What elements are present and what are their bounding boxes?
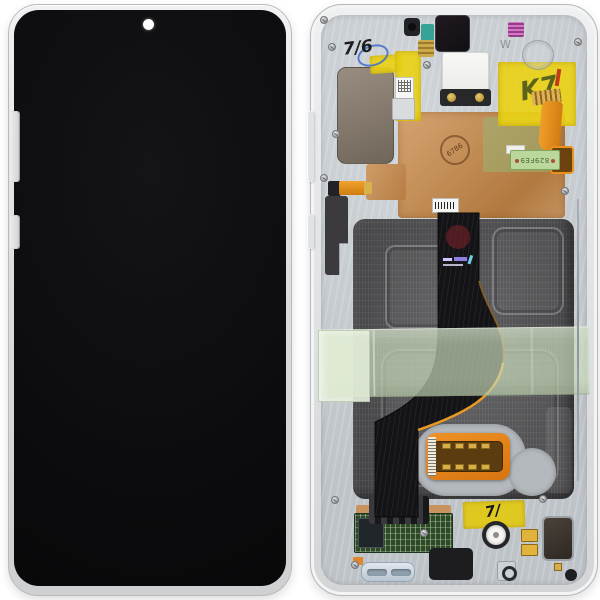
screw: [423, 61, 431, 69]
green-pcb-strip: 829FE9: [510, 150, 560, 170]
shield-can: [392, 98, 415, 120]
pcb-test-point: [551, 159, 555, 163]
display-screen: [14, 10, 286, 586]
machined-emboss: [492, 227, 564, 315]
handwritten-mark: 7/6: [342, 36, 374, 59]
qc-sticker-pink: [508, 22, 524, 37]
gold-contact: [475, 93, 484, 102]
bracket-slot: [367, 569, 387, 576]
speaker-mesh: [429, 548, 473, 580]
gold-contact: [364, 182, 372, 194]
screw: [320, 174, 328, 182]
screw: [574, 38, 582, 46]
screw: [351, 561, 359, 569]
copper-stamp-text: 6786: [445, 142, 464, 159]
power-button-back: [307, 214, 314, 249]
flex-cable-connector-end: [369, 496, 429, 524]
volume-button-back: [307, 111, 314, 182]
gold-contact: [447, 93, 456, 102]
volume-button: [10, 111, 20, 182]
embossed-stamp: [522, 40, 554, 70]
earpiece-speaker-pad: [442, 52, 489, 93]
barcode-sticker: [432, 198, 459, 213]
gold-contact: [521, 544, 538, 556]
bracket-slot: [391, 569, 411, 576]
pcb-test-point: [515, 159, 519, 163]
pcb-strip-code: 829FE9: [520, 156, 549, 164]
gold-contact: [554, 563, 562, 571]
tape-crease: [531, 328, 534, 394]
vibration-motor-coil: [482, 521, 510, 549]
loudspeaker-module: [542, 516, 574, 561]
screw: [331, 496, 339, 504]
microphone-hole: [565, 569, 577, 581]
phone-front-view: [8, 4, 292, 596]
orange-flex-cable: [538, 100, 563, 152]
gold-contact: [521, 529, 538, 542]
qr-code-sticker: [395, 77, 414, 99]
btb-connector-orange: [426, 433, 510, 480]
connector-label: [428, 437, 436, 476]
orange-flex-cable: [339, 181, 366, 195]
red-marker-tick: [555, 69, 562, 86]
graphite-thermal-pad: [337, 67, 394, 164]
gold-contact-pads: [418, 40, 434, 57]
camera-lens-housing: [404, 18, 420, 36]
chassis-letter: W: [500, 38, 511, 51]
phone-back-view: 6786 K7 W 7/6 829: [310, 4, 598, 596]
tape-crease: [373, 330, 376, 396]
green-tape-flap: [318, 330, 370, 402]
machined-emboss: [385, 245, 469, 329]
handwritten-mark: 7/: [483, 501, 502, 521]
front-camera-punch-hole: [143, 19, 154, 30]
front-camera-module: [435, 15, 470, 52]
sensor-part: [421, 24, 434, 41]
screw: [420, 529, 428, 537]
stylus-slot-seam: [577, 199, 579, 481]
screw: [539, 495, 547, 503]
screw-boss: [497, 561, 516, 581]
screw: [320, 16, 328, 24]
screw: [561, 187, 569, 195]
product-photo: 6786 K7 W 7/6 829: [0, 0, 600, 600]
connector-mount-plateau: [508, 448, 556, 496]
power-button: [10, 215, 20, 249]
screw: [332, 130, 340, 138]
speaker-bracket: [440, 89, 491, 106]
charging-port-bracket: [361, 562, 415, 582]
screw: [328, 43, 336, 51]
copper-stamp: 6786: [440, 135, 470, 165]
